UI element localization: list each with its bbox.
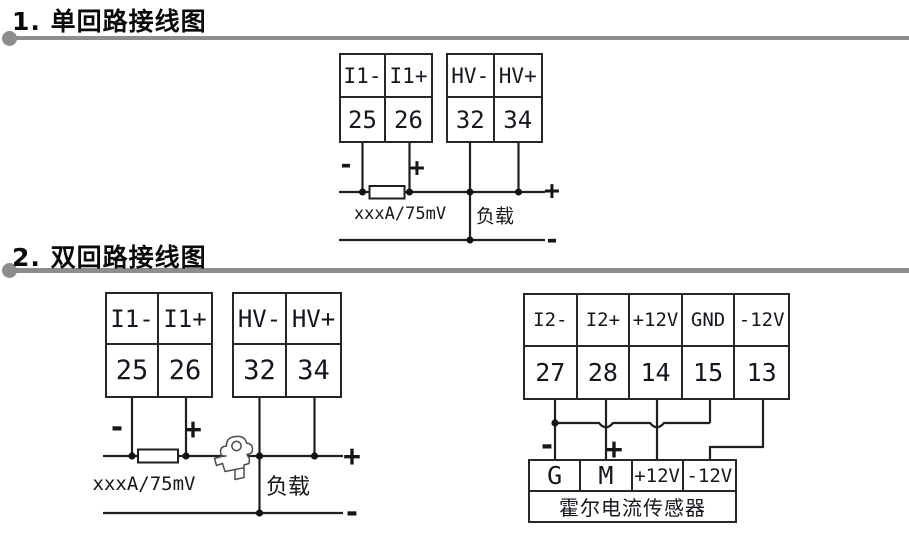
- terminal-number-cell: 26: [159, 345, 211, 396]
- hall-pin-cell: G: [530, 461, 581, 492]
- hall-sensor-block: G M +12V -12V 霍尔电流传感器: [528, 459, 737, 523]
- resistor-icon: [138, 450, 178, 463]
- input-minus-label: -: [108, 410, 125, 444]
- terminal-number-cell: 26: [386, 98, 431, 141]
- terminal-number-cell: 28: [578, 347, 631, 399]
- hall-sensor-wires: [555, 400, 763, 459]
- hall-pin-cell: +12V: [633, 461, 684, 492]
- terminal-block-i1-dual: I1- I1+ 25 26: [105, 292, 213, 398]
- output-plus-label: +: [343, 439, 360, 473]
- section1-title: 1. 单回路接线图: [12, 2, 207, 38]
- terminal-label-cell: I2-: [525, 295, 578, 347]
- terminal-number-cell: 25: [107, 345, 159, 396]
- terminal-label-cell: +12V: [630, 295, 683, 347]
- input-plus-label: +: [409, 153, 425, 183]
- terminal-label-cell: HV-: [448, 55, 495, 98]
- terminal-number-cell: 25: [341, 98, 386, 141]
- terminal-label-cell: GND: [683, 295, 736, 347]
- terminal-number-cell: 34: [495, 98, 542, 141]
- terminal-label-cell: I1+: [386, 55, 431, 98]
- terminal-number-cell: 32: [448, 98, 495, 141]
- terminal-number-cell: 27: [525, 347, 578, 399]
- clamp-sensor-icon: [215, 436, 253, 479]
- output-plus-label: +: [544, 176, 560, 206]
- output-minus-label: -: [343, 495, 360, 529]
- terminal-label-cell: HV-: [234, 294, 287, 345]
- hall-plus-label: +: [605, 432, 622, 466]
- terminal-number-cell: 15: [683, 347, 736, 399]
- output-minus-label: -: [544, 225, 560, 255]
- terminal-label-cell: HV+: [287, 294, 340, 345]
- terminal-label-cell: -12V: [735, 295, 788, 347]
- terminal-block-hv-dual: HV- HV+ 32 34: [232, 292, 342, 398]
- load-label: 负载: [476, 202, 514, 229]
- wiring-manual-page: 1. 单回路接线图 2. 双回路接线图: [0, 0, 909, 533]
- terminal-number-cell: 14: [630, 347, 683, 399]
- terminal-block-hv-single: HV- HV+ 32 34: [446, 53, 543, 143]
- terminal-number-cell: 34: [287, 345, 340, 396]
- terminal-label-cell: I1-: [107, 294, 159, 345]
- terminal-label-cell: HV+: [495, 55, 542, 98]
- junction-dot-icon: [551, 419, 558, 426]
- terminal-number-cell: 32: [234, 345, 287, 396]
- terminal-block-i2-dual: I2- I2+ +12V GND -12V 27 28 14 15 13: [523, 293, 790, 400]
- shunt-rating-label: xxxA/75mV: [93, 473, 196, 495]
- shunt-rating-label: xxxA/75mV: [354, 204, 446, 224]
- input-minus-label: -: [338, 150, 354, 180]
- terminal-label-cell: I1-: [341, 55, 386, 98]
- hall-sensor-caption: 霍尔电流传感器: [530, 492, 735, 521]
- load-label: 负载: [266, 469, 310, 501]
- hall-pin-cell: -12V: [684, 461, 735, 492]
- resistor-icon: [370, 186, 405, 199]
- terminal-label-cell: I2+: [578, 295, 631, 347]
- terminal-number-cell: 13: [735, 347, 788, 399]
- section2-title: 2. 双回路接线图: [12, 238, 207, 274]
- terminal-block-i1-single: I1- I1+ 25 26: [339, 53, 433, 143]
- input-plus-label: +: [184, 412, 201, 446]
- terminal-label-cell: I1+: [159, 294, 211, 345]
- hall-minus-label: -: [538, 428, 555, 462]
